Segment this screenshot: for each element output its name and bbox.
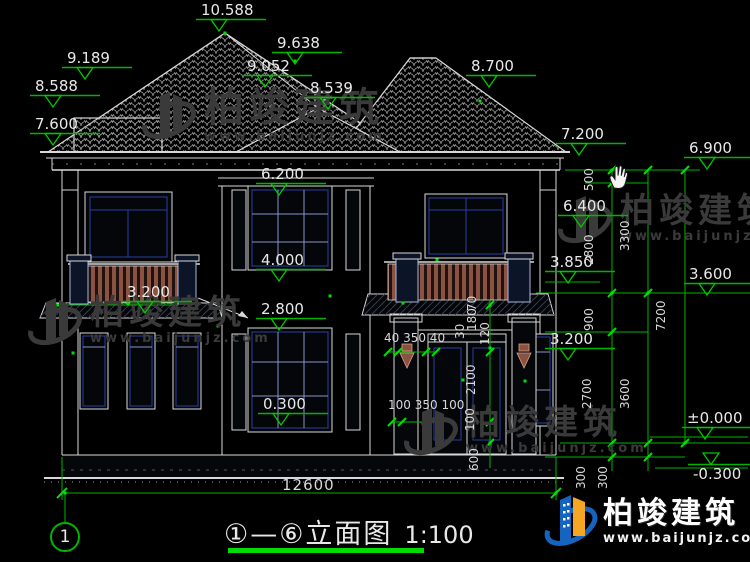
level-symbol-icon	[684, 282, 750, 296]
elevation-value: 3.200	[122, 284, 196, 300]
baijun-logo-url: www.baijunjz.com	[603, 531, 750, 546]
level-symbol-icon	[62, 66, 132, 80]
watermark-brand: 柏竣建筑	[204, 87, 385, 129]
baijun-logo-icon	[543, 484, 599, 558]
level-symbol-icon	[558, 214, 628, 228]
level-symbol-icon	[556, 142, 626, 156]
title-underline	[228, 548, 424, 553]
dimension-value: 600	[468, 448, 481, 471]
watermark: 柏竣建筑 www.baijunjz.com	[140, 84, 385, 146]
watermark-url: www.baijunjz.com	[204, 129, 385, 144]
elevation-marker: 8.700	[466, 58, 540, 88]
elevation-marker: 7.200	[556, 126, 630, 156]
axis-grid-number: 1	[60, 527, 71, 547]
level-symbol-icon	[684, 156, 750, 170]
window-1f-center	[232, 328, 360, 432]
elevation-marker: 9.189	[62, 50, 136, 80]
axis-grid-bubble: 1	[50, 522, 80, 552]
dimension-value: 500	[583, 168, 596, 191]
plinth-ground	[44, 455, 564, 482]
vertical-dimension-layer: 5002800900270030030033003600720070180301…	[0, 0, 750, 562]
roof	[48, 33, 566, 152]
elevation-marker: 9.638	[272, 35, 346, 65]
elevation-marker: -0.300	[688, 452, 750, 482]
watermark-brand: 柏竣建筑	[90, 296, 271, 332]
dimension-value: 30	[454, 324, 467, 339]
dimension-value: 40 350 40	[384, 331, 445, 345]
watermark-logo-icon	[402, 400, 460, 462]
elevation-marker: ±0.000	[682, 410, 750, 440]
elevation-marker: 8.539	[305, 80, 379, 110]
grip-dots	[57, 32, 687, 495]
eave-fascia	[40, 152, 570, 170]
elevation-marker: 7.600	[30, 116, 104, 146]
elevation-value: 10.588	[196, 2, 270, 18]
hand-cursor-icon	[606, 162, 630, 190]
dimension-ticks	[384, 166, 689, 461]
canopy-right	[362, 294, 554, 315]
level-symbol-icon	[30, 132, 100, 146]
level-symbol-icon	[256, 317, 326, 331]
elevation-drawing	[0, 0, 750, 562]
elevation-value: 6.400	[558, 198, 632, 214]
watermark: 柏竣建筑 www.baijunjz.com	[556, 188, 750, 250]
elevation-marker: 3.600	[684, 266, 750, 296]
elevation-value: 4.000	[256, 252, 330, 268]
entrance	[378, 314, 554, 462]
level-symbol-icon	[258, 412, 328, 426]
elevation-marker-layer: 10.588 9.638	[0, 0, 750, 562]
level-symbol-icon	[305, 96, 375, 110]
dimension-value: 900	[583, 308, 596, 331]
window-2f-center	[232, 186, 360, 270]
dimension-value: 2100	[465, 364, 478, 395]
watermark-logo-icon	[26, 290, 84, 352]
dimension-value: 2700	[581, 378, 594, 409]
level-symbol-icon	[688, 452, 750, 466]
dimension-value: 3600	[619, 378, 632, 409]
elevation-value: 7.200	[556, 126, 630, 142]
elevation-marker: 0.300	[258, 396, 332, 426]
elevation-value: 8.588	[30, 78, 104, 94]
horizontal-dimension-layer: 40 350 40100 350 10012600	[0, 0, 750, 562]
watermark-url: www.baijunjz.com	[466, 441, 647, 456]
dimension-value: 180	[466, 308, 479, 331]
elevation-value: 0.300	[258, 396, 332, 412]
elevation-value: -0.300	[688, 466, 750, 482]
drawing-title-block: ①—⑥立面图1:100	[224, 512, 474, 551]
baijun-logo: 柏竣建筑 www.baijunjz.com	[543, 484, 750, 558]
elevation-marker: 3.200	[122, 284, 196, 314]
level-symbol-icon	[256, 182, 326, 196]
dimension-value: 120	[479, 322, 492, 345]
drawing-title: ①—⑥立面图	[224, 519, 392, 550]
elevation-value: 6.200	[256, 166, 330, 182]
elevation-marker: 3.850	[545, 254, 619, 284]
dimension-value: 100 350 100	[388, 398, 464, 412]
watermark-logo-icon	[556, 188, 614, 250]
elevation-value: 3.600	[684, 266, 750, 282]
level-symbol-icon	[122, 300, 192, 314]
balcony-right	[384, 253, 534, 302]
watermark: 柏竣建筑 www.baijunjz.com	[402, 400, 647, 462]
cad-elevation-viewport: 柏竣建筑 www.baijunjz.com 柏竣建筑 www.baijunjz.…	[0, 0, 750, 562]
elevation-marker: 6.900	[684, 140, 750, 170]
elevation-value: 7.600	[30, 116, 104, 132]
level-symbol-icon	[272, 51, 342, 65]
dimension-value: 2800	[583, 234, 596, 265]
level-symbol-icon	[545, 347, 615, 361]
elevation-value: 3.850	[545, 254, 619, 270]
elevation-value: 8.700	[466, 58, 540, 74]
elevation-marker: 4.000	[256, 252, 330, 282]
watermark-url: www.baijunjz.com	[620, 229, 750, 244]
elevation-value: 8.539	[305, 80, 379, 96]
watermark-url: www.baijunjz.com	[90, 331, 271, 346]
dimension-value: 12600	[282, 476, 335, 494]
elevation-marker: 2.800	[256, 301, 330, 331]
leader-arrow	[198, 298, 248, 318]
dimension-value: 70	[466, 296, 479, 311]
elevation-value: 2.800	[256, 301, 330, 317]
elevation-value: ±0.000	[682, 410, 750, 426]
elevation-value: 9.052	[242, 58, 316, 74]
elevation-value: 9.638	[272, 35, 346, 51]
canopy-left	[40, 303, 222, 318]
window-2f-left	[80, 192, 177, 262]
windows-1f-left	[80, 333, 201, 409]
level-symbol-icon	[466, 74, 536, 88]
dimension-value: 7200	[655, 300, 668, 331]
dimension-value: 100	[464, 408, 477, 431]
level-symbol-icon	[682, 426, 750, 440]
elevation-value: 9.189	[62, 50, 136, 66]
elevation-marker: 3.200	[545, 331, 619, 361]
dimension-lines	[55, 170, 750, 522]
level-symbol-icon	[30, 94, 100, 108]
elevation-marker: 6.200	[256, 166, 330, 196]
dimension-value: 3300	[619, 220, 632, 251]
watermark-brand: 柏竣建筑	[620, 194, 750, 230]
elevation-value: 6.900	[684, 140, 750, 156]
elevation-value: 3.200	[545, 331, 619, 347]
level-symbol-icon	[545, 270, 615, 284]
level-symbol-icon	[196, 18, 266, 32]
level-symbol-icon	[242, 74, 312, 88]
baijun-logo-brand: 柏竣建筑	[603, 497, 750, 530]
elevation-marker: 6.400	[558, 198, 632, 228]
elevation-marker: 10.588	[196, 2, 270, 32]
elevation-marker: 9.052	[242, 58, 316, 88]
walls	[62, 170, 556, 455]
window-2f-right	[425, 194, 507, 258]
drawing-scale: 1:100	[404, 521, 473, 549]
window-1f-right	[527, 334, 553, 426]
balcony-left	[67, 255, 200, 304]
elevation-marker: 8.588	[30, 78, 104, 108]
watermark-brand: 柏竣建筑	[466, 406, 647, 442]
watermark-logo-icon	[140, 84, 198, 146]
watermark: 柏竣建筑 www.baijunjz.com	[26, 290, 271, 352]
level-symbol-icon	[256, 268, 326, 282]
watermark-layer: 柏竣建筑 www.baijunjz.com 柏竣建筑 www.baijunjz.…	[0, 0, 750, 562]
